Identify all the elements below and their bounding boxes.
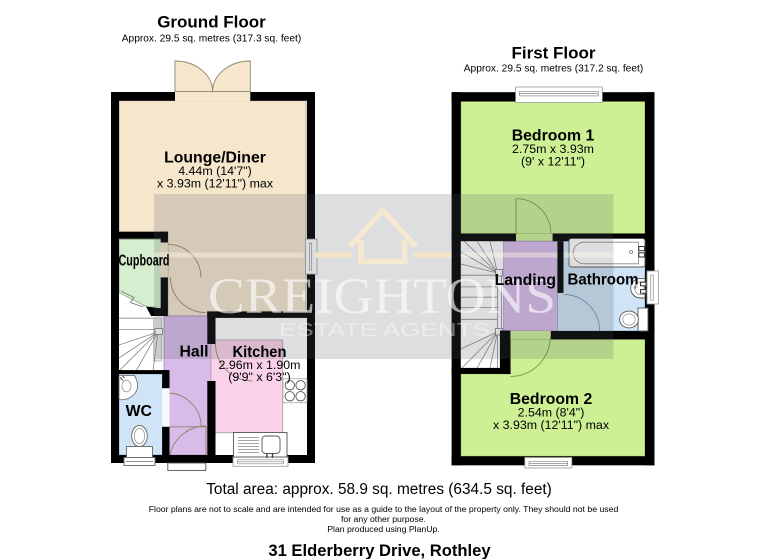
svg-text:Cupboard: Cupboard	[119, 253, 170, 270]
svg-text:(9' x 12'11"): (9' x 12'11")	[521, 155, 585, 169]
svg-text:Plan produced using PlanUp.: Plan produced using PlanUp.	[327, 524, 440, 534]
svg-text:Approx. 29.5 sq. metres (317.3: Approx. 29.5 sq. metres (317.3 sq. feet)	[122, 34, 302, 45]
svg-text:31 Elderberry Drive, Rothley: 31 Elderberry Drive, Rothley	[268, 541, 491, 559]
svg-text:Floor plans are not to scale a: Floor plans are not to scale and are int…	[149, 504, 619, 514]
svg-text:WC: WC	[126, 403, 152, 420]
svg-text:x 3.93m (12'11") max: x 3.93m (12'11") max	[157, 177, 274, 191]
svg-text:for any other purpose.: for any other purpose.	[341, 514, 426, 524]
svg-text:Total area: approx. 58.9 sq. m: Total area: approx. 58.9 sq. metres (634…	[206, 481, 552, 498]
svg-text:Approx. 29.5 sq. metres (317.2: Approx. 29.5 sq. metres (317.2 sq. feet)	[464, 64, 644, 75]
svg-text:Ground Floor: Ground Floor	[157, 13, 266, 32]
svg-text:ESTATE AGENTS: ESTATE AGENTS	[279, 319, 490, 340]
svg-text:x 3.93m (12'11") max: x 3.93m (12'11") max	[493, 418, 610, 432]
svg-text:(9'9" x 6'3"): (9'9" x 6'3")	[228, 370, 290, 384]
svg-text:Hall: Hall	[180, 344, 209, 361]
svg-text:Bathroom: Bathroom	[568, 272, 639, 289]
svg-text:Landing: Landing	[495, 272, 556, 289]
svg-text:First Floor: First Floor	[511, 44, 595, 63]
